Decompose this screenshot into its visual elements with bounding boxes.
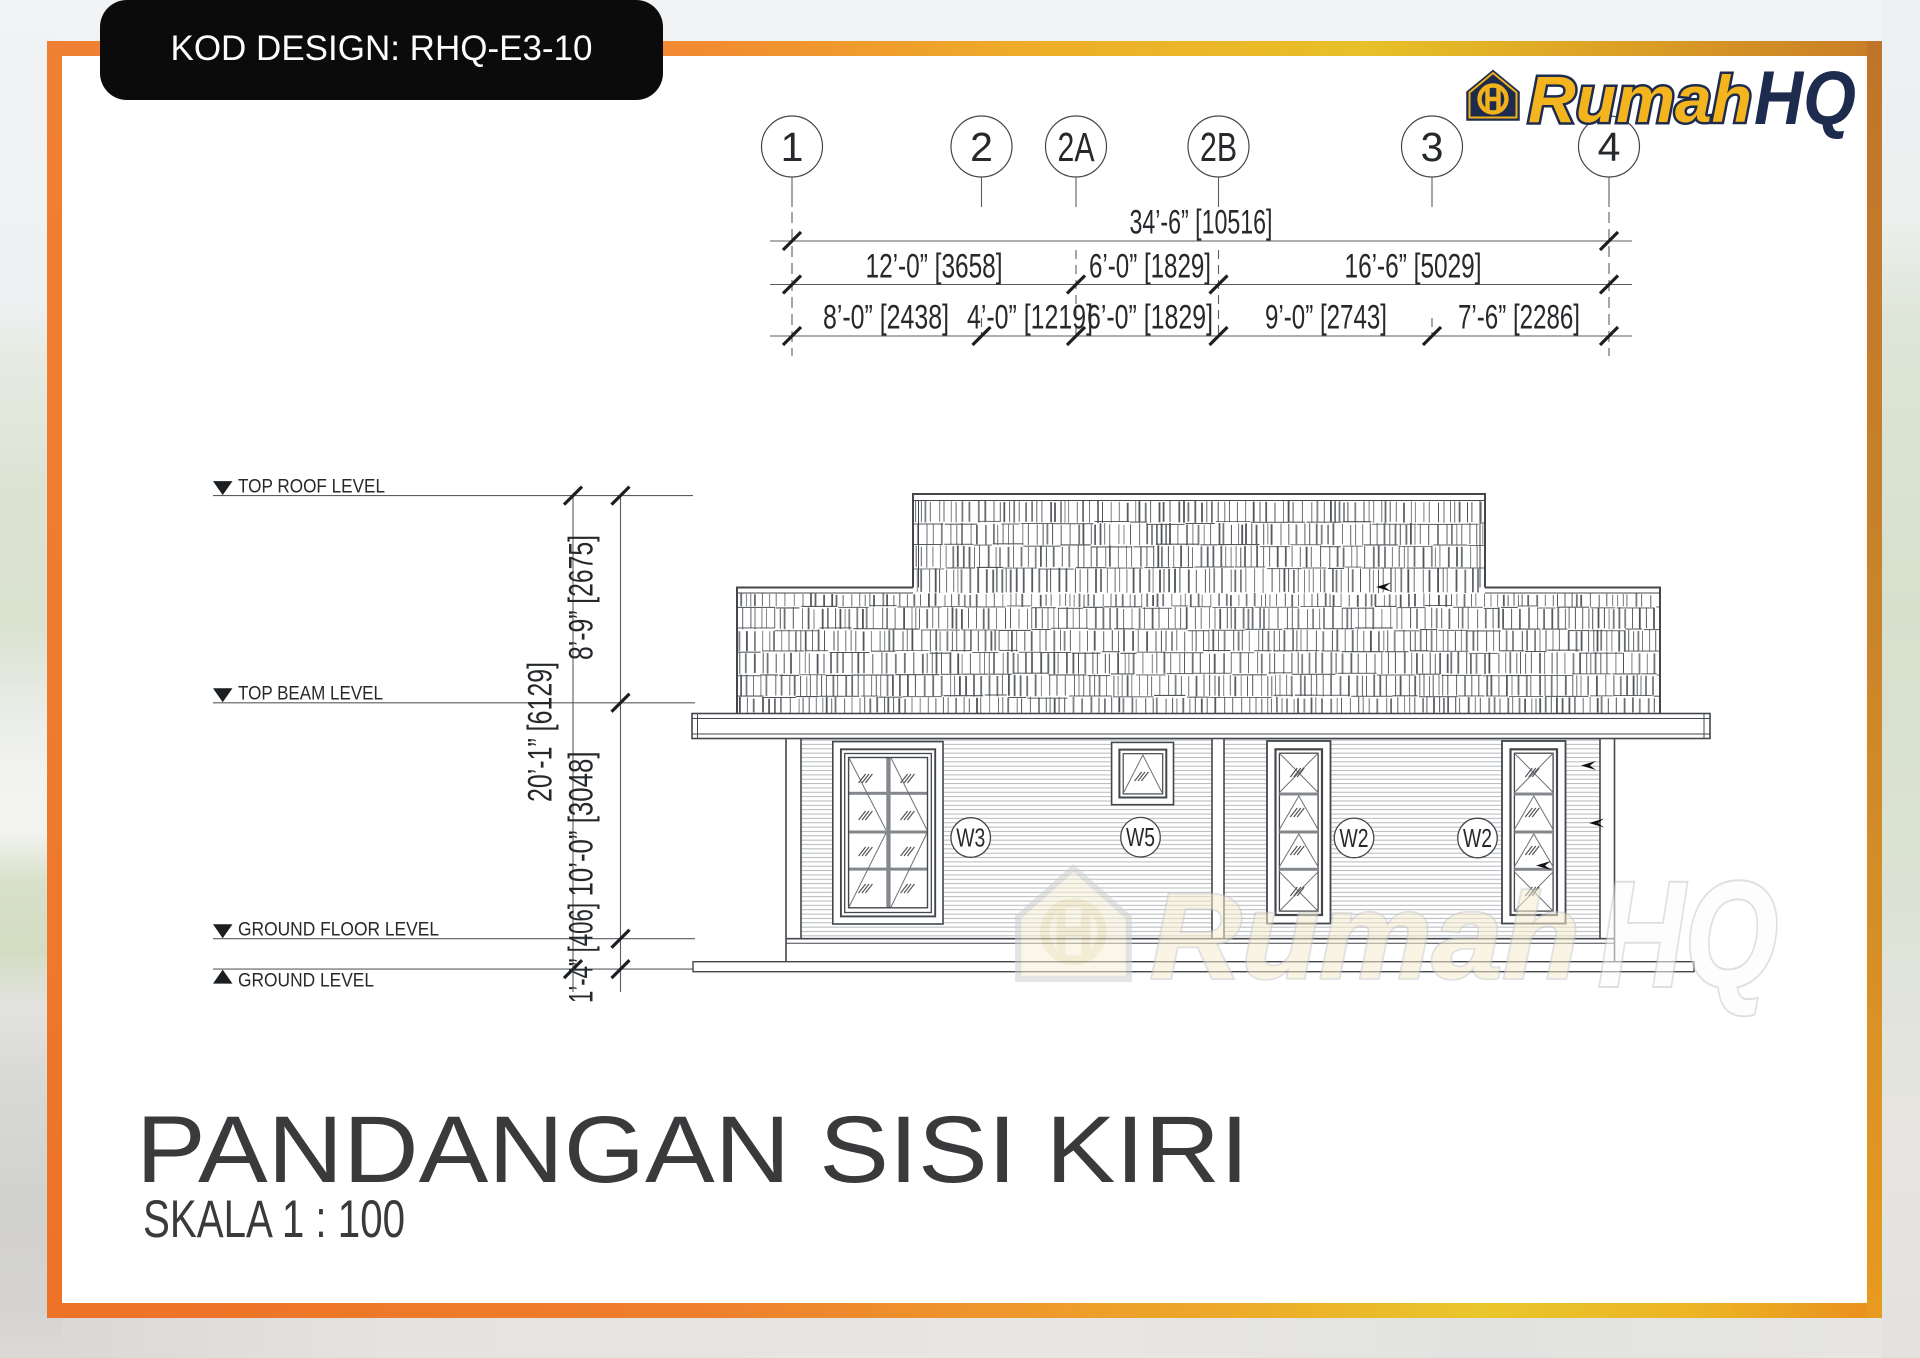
svg-text:10’-0” [3048]: 10’-0” [3048] [563, 752, 601, 897]
svg-text:1: 1 [781, 124, 804, 170]
svg-text:GROUND LEVEL: GROUND LEVEL [238, 971, 374, 992]
svg-text:3: 3 [1421, 124, 1444, 170]
svg-text:TOP BEAM LEVEL: TOP BEAM LEVEL [238, 684, 383, 705]
svg-text:PANDANGAN SISI KIRI: PANDANGAN SISI KIRI [136, 1097, 1249, 1203]
svg-text:8’-0” [2438]: 8’-0” [2438] [823, 299, 949, 337]
svg-text:W3: W3 [956, 823, 985, 853]
svg-text:8’-9” [2675]: 8’-9” [2675] [563, 535, 601, 660]
svg-text:GROUND FLOOR LEVEL: GROUND FLOOR LEVEL [238, 920, 439, 941]
svg-text:W5: W5 [1126, 822, 1155, 852]
svg-text:2: 2 [970, 124, 993, 170]
svg-text:16’-6” [5029]: 16’-6” [5029] [1345, 248, 1482, 286]
svg-text:TOP ROOF LEVEL: TOP ROOF LEVEL [238, 476, 385, 497]
svg-text:Rumah: Rumah [1528, 62, 1752, 136]
svg-text:12’-0” [3658]: 12’-0” [3658] [866, 248, 1003, 286]
svg-text:W2: W2 [1463, 823, 1492, 853]
svg-text:6’-0” [1829]: 6’-0” [1829] [1087, 299, 1213, 337]
svg-text:6’-0” [1829]: 6’-0” [1829] [1089, 248, 1211, 286]
svg-text:7’-6” [2286]: 7’-6” [2286] [1458, 299, 1580, 337]
svg-text:2A: 2A [1058, 124, 1095, 170]
svg-text:HQ: HQ [1598, 850, 1778, 1018]
svg-text:W2: W2 [1340, 823, 1369, 853]
svg-text:20’-1” [6129]: 20’-1” [6129] [522, 662, 560, 802]
svg-text:34’-6” [10516]: 34’-6” [10516] [1130, 204, 1273, 242]
svg-text:4’-0” [1219]: 4’-0” [1219] [967, 299, 1093, 337]
svg-text:HQ: HQ [1754, 56, 1856, 141]
svg-text:SKALA 1 : 100: SKALA 1 : 100 [143, 1190, 405, 1249]
svg-text:2B: 2B [1200, 124, 1237, 170]
svg-text:Rumah: Rumah [1150, 868, 1580, 1004]
svg-text:1’-4” [406]: 1’-4” [406] [563, 903, 601, 1003]
svg-text:9’-0” [2743]: 9’-0” [2743] [1265, 299, 1387, 337]
